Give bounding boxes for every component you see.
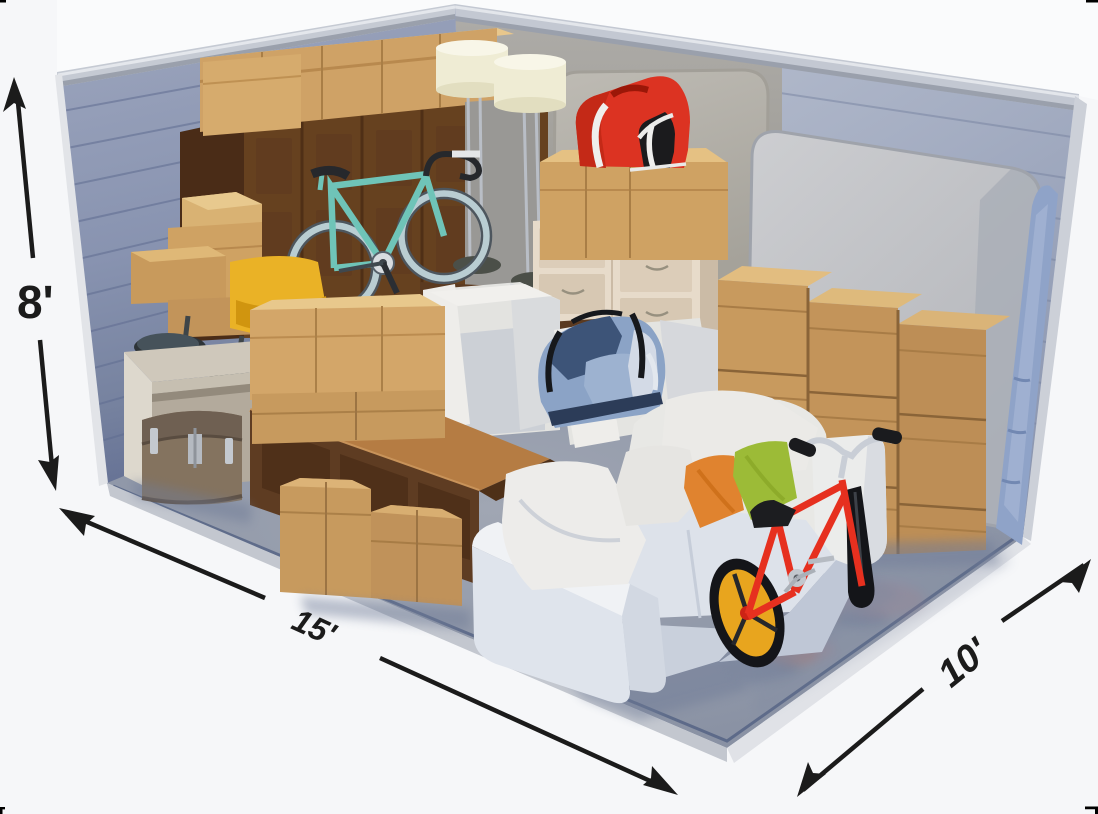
svg-text:8': 8' — [17, 276, 54, 328]
